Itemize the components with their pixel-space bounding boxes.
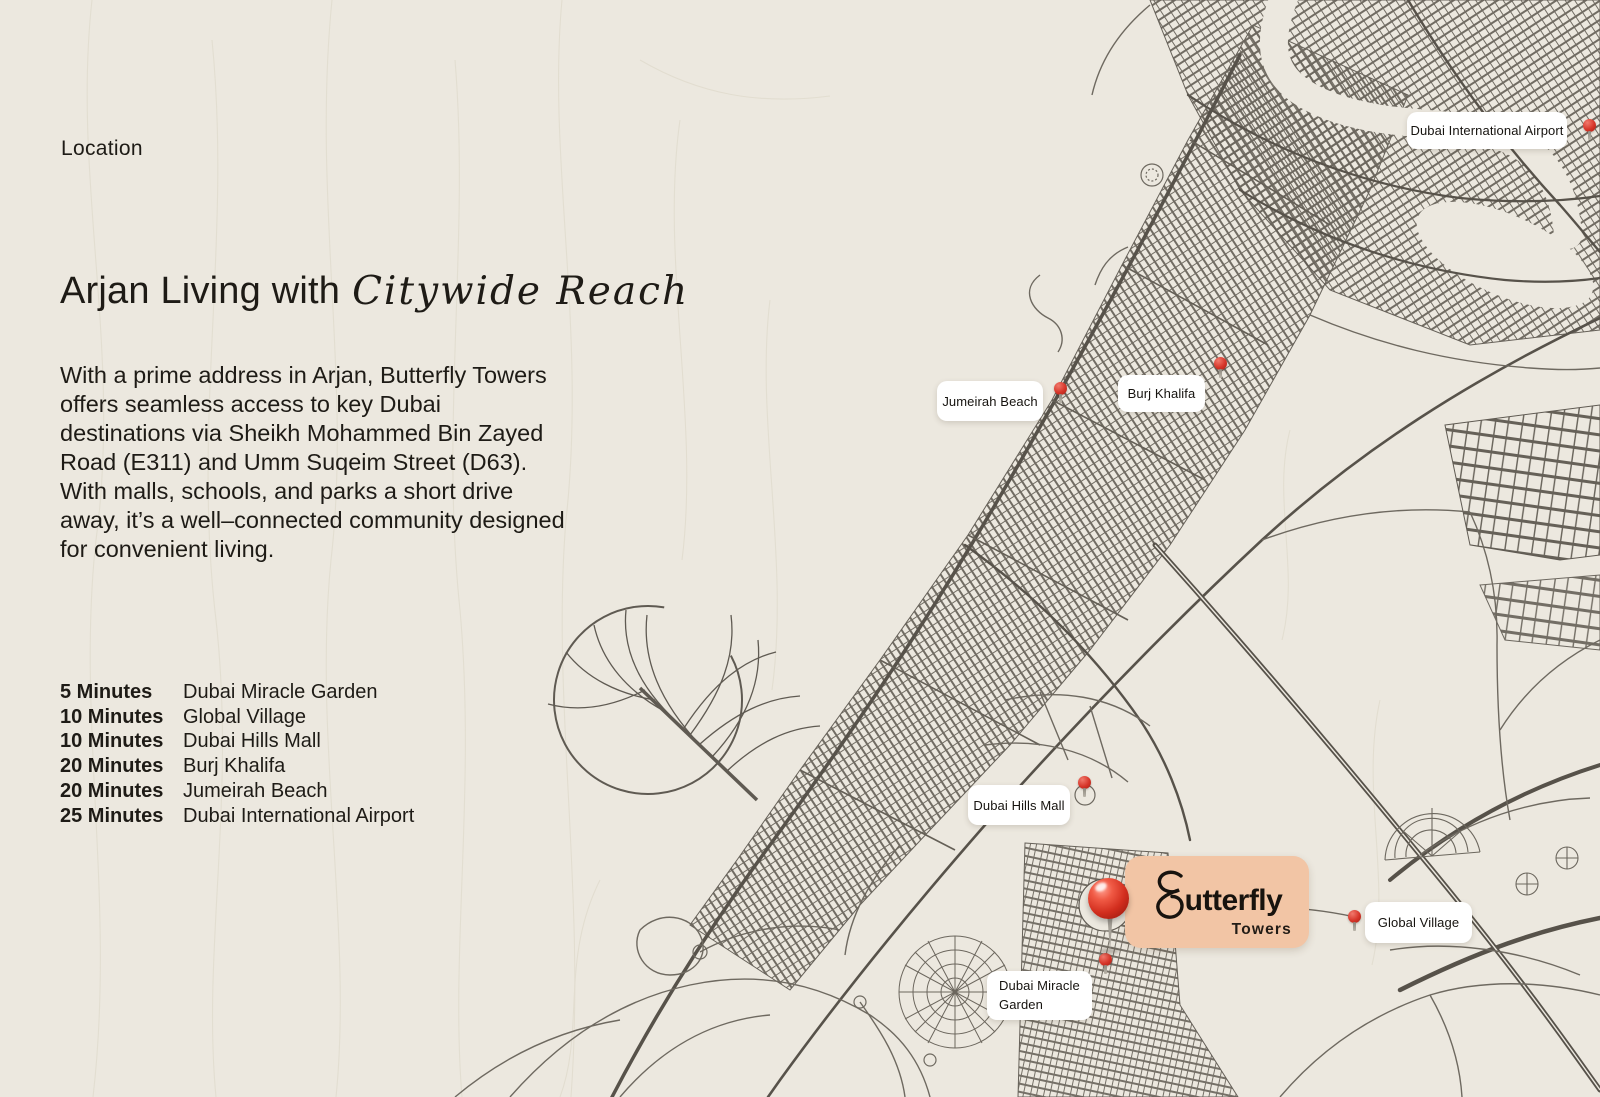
map-label-global-village: Global Village — [1365, 902, 1472, 943]
travel-times-list: 5 Minutes Dubai Miracle Garden 10 Minute… — [60, 680, 414, 828]
map-pin-global-village — [1348, 910, 1361, 923]
travel-time-row: 20 Minutes Burj Khalifa — [60, 754, 414, 779]
map-pin-dubai-hills-mall — [1078, 776, 1091, 789]
butterfly-logo-b-icon — [1152, 870, 1188, 920]
map-pin-jumeirah-beach — [1054, 382, 1067, 395]
heading-regular: Arjan Living with — [60, 270, 340, 312]
travel-destination: Global Village — [183, 705, 306, 730]
page-title: Location — [61, 137, 143, 161]
travel-destination: Dubai Miracle Garden — [183, 680, 378, 705]
travel-time: 10 Minutes — [60, 705, 183, 730]
travel-time: 20 Minutes — [60, 754, 183, 779]
map-label-dubai-international-airport: Dubai International Airport — [1407, 112, 1567, 149]
heading-script: Citywide Reach — [352, 269, 689, 314]
map-label-dubai-hills-mall: Dubai Hills Mall — [968, 785, 1070, 825]
location-page: Location Arjan Living withCitywide Reach… — [0, 0, 1600, 1097]
map-pin-burj-khalifa — [1214, 357, 1227, 370]
badge-brand-text: utterfly — [1185, 886, 1283, 920]
travel-time-row: 10 Minutes Dubai Hills Mall — [60, 729, 414, 754]
map-pin-butterfly-towers — [1086, 878, 1132, 958]
travel-destination: Dubai International Airport — [183, 804, 414, 829]
travel-destination: Dubai Hills Mall — [183, 729, 321, 754]
travel-destination: Jumeirah Beach — [183, 779, 328, 804]
map-label-burj-khalifa: Burj Khalifa — [1118, 375, 1205, 412]
intro-paragraph: With a prime address in Arjan, Butterfly… — [60, 361, 568, 564]
section-heading: Arjan Living withCitywide Reach — [60, 268, 689, 313]
badge-brand-row: utterfly — [1152, 870, 1283, 920]
map-label-dubai-miracle-garden: Dubai Miracle Garden — [987, 971, 1092, 1020]
badge-sub-text: Towers — [1232, 921, 1292, 939]
butterfly-towers-badge: utterfly Towers — [1125, 856, 1309, 948]
travel-time-row: 25 Minutes Dubai International Airport — [60, 804, 414, 829]
travel-time: 10 Minutes — [60, 729, 183, 754]
travel-time-row: 20 Minutes Jumeirah Beach — [60, 779, 414, 804]
map-pin-dubai-international-airport — [1583, 119, 1596, 132]
travel-time: 5 Minutes — [60, 680, 183, 705]
travel-time: 25 Minutes — [60, 804, 183, 829]
travel-time-row: 10 Minutes Global Village — [60, 705, 414, 730]
travel-destination: Burj Khalifa — [183, 754, 285, 779]
travel-time-row: 5 Minutes Dubai Miracle Garden — [60, 680, 414, 705]
map-label-jumeirah-beach: Jumeirah Beach — [937, 381, 1043, 421]
pin-head-icon — [1088, 878, 1129, 919]
travel-time: 20 Minutes — [60, 779, 183, 804]
